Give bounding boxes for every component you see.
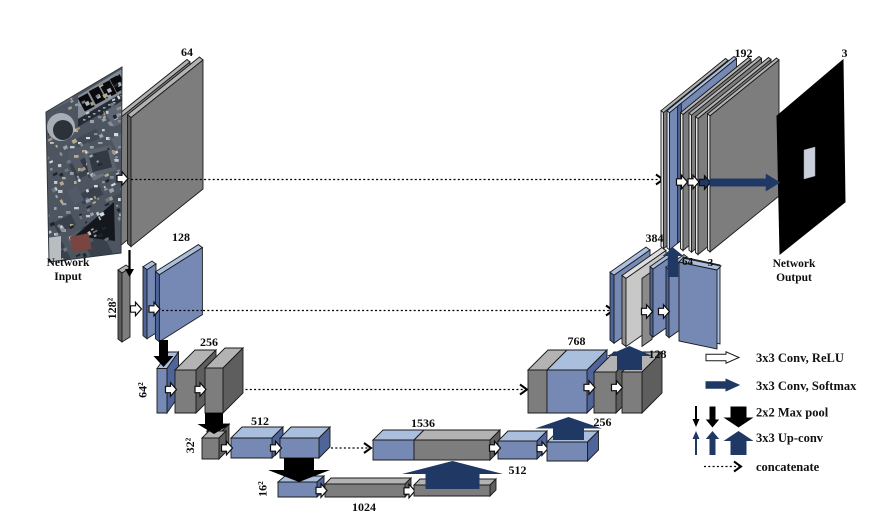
svg-text:384: 384 xyxy=(646,231,664,245)
svg-text:256: 256 xyxy=(594,415,612,429)
svg-text:2x2 Max pool: 2x2 Max pool xyxy=(756,406,829,420)
svg-text:64²: 64² xyxy=(136,382,150,398)
svg-text:128²: 128² xyxy=(105,297,119,319)
svg-text:Input: Input xyxy=(54,271,82,283)
svg-text:768: 768 xyxy=(568,334,586,348)
svg-text:64: 64 xyxy=(181,45,193,59)
svg-text:192: 192 xyxy=(735,46,753,60)
svg-text:concatenate: concatenate xyxy=(756,460,820,474)
svg-text:3x3 Conv, ReLU: 3x3 Conv, ReLU xyxy=(756,351,844,365)
svg-text:32²: 32² xyxy=(183,437,197,453)
svg-text:128: 128 xyxy=(172,230,190,244)
svg-text:3: 3 xyxy=(708,257,714,269)
svg-text:64: 64 xyxy=(682,256,694,268)
svg-text:128: 128 xyxy=(649,347,667,361)
svg-text:3: 3 xyxy=(842,46,848,60)
svg-text:Output: Output xyxy=(776,272,812,284)
svg-text:1024: 1024 xyxy=(352,500,376,514)
svg-text:256: 256 xyxy=(200,335,218,349)
svg-text:Network: Network xyxy=(47,257,90,269)
svg-text:512: 512 xyxy=(251,414,269,428)
svg-text:16²: 16² xyxy=(256,481,270,497)
svg-text:1536: 1536 xyxy=(411,416,435,430)
svg-text:3x3 Conv, Softmax: 3x3 Conv, Softmax xyxy=(756,379,857,393)
svg-text:3x3 Up-conv: 3x3 Up-conv xyxy=(756,431,824,445)
svg-text:512: 512 xyxy=(509,463,527,477)
svg-text:Network: Network xyxy=(773,258,816,270)
